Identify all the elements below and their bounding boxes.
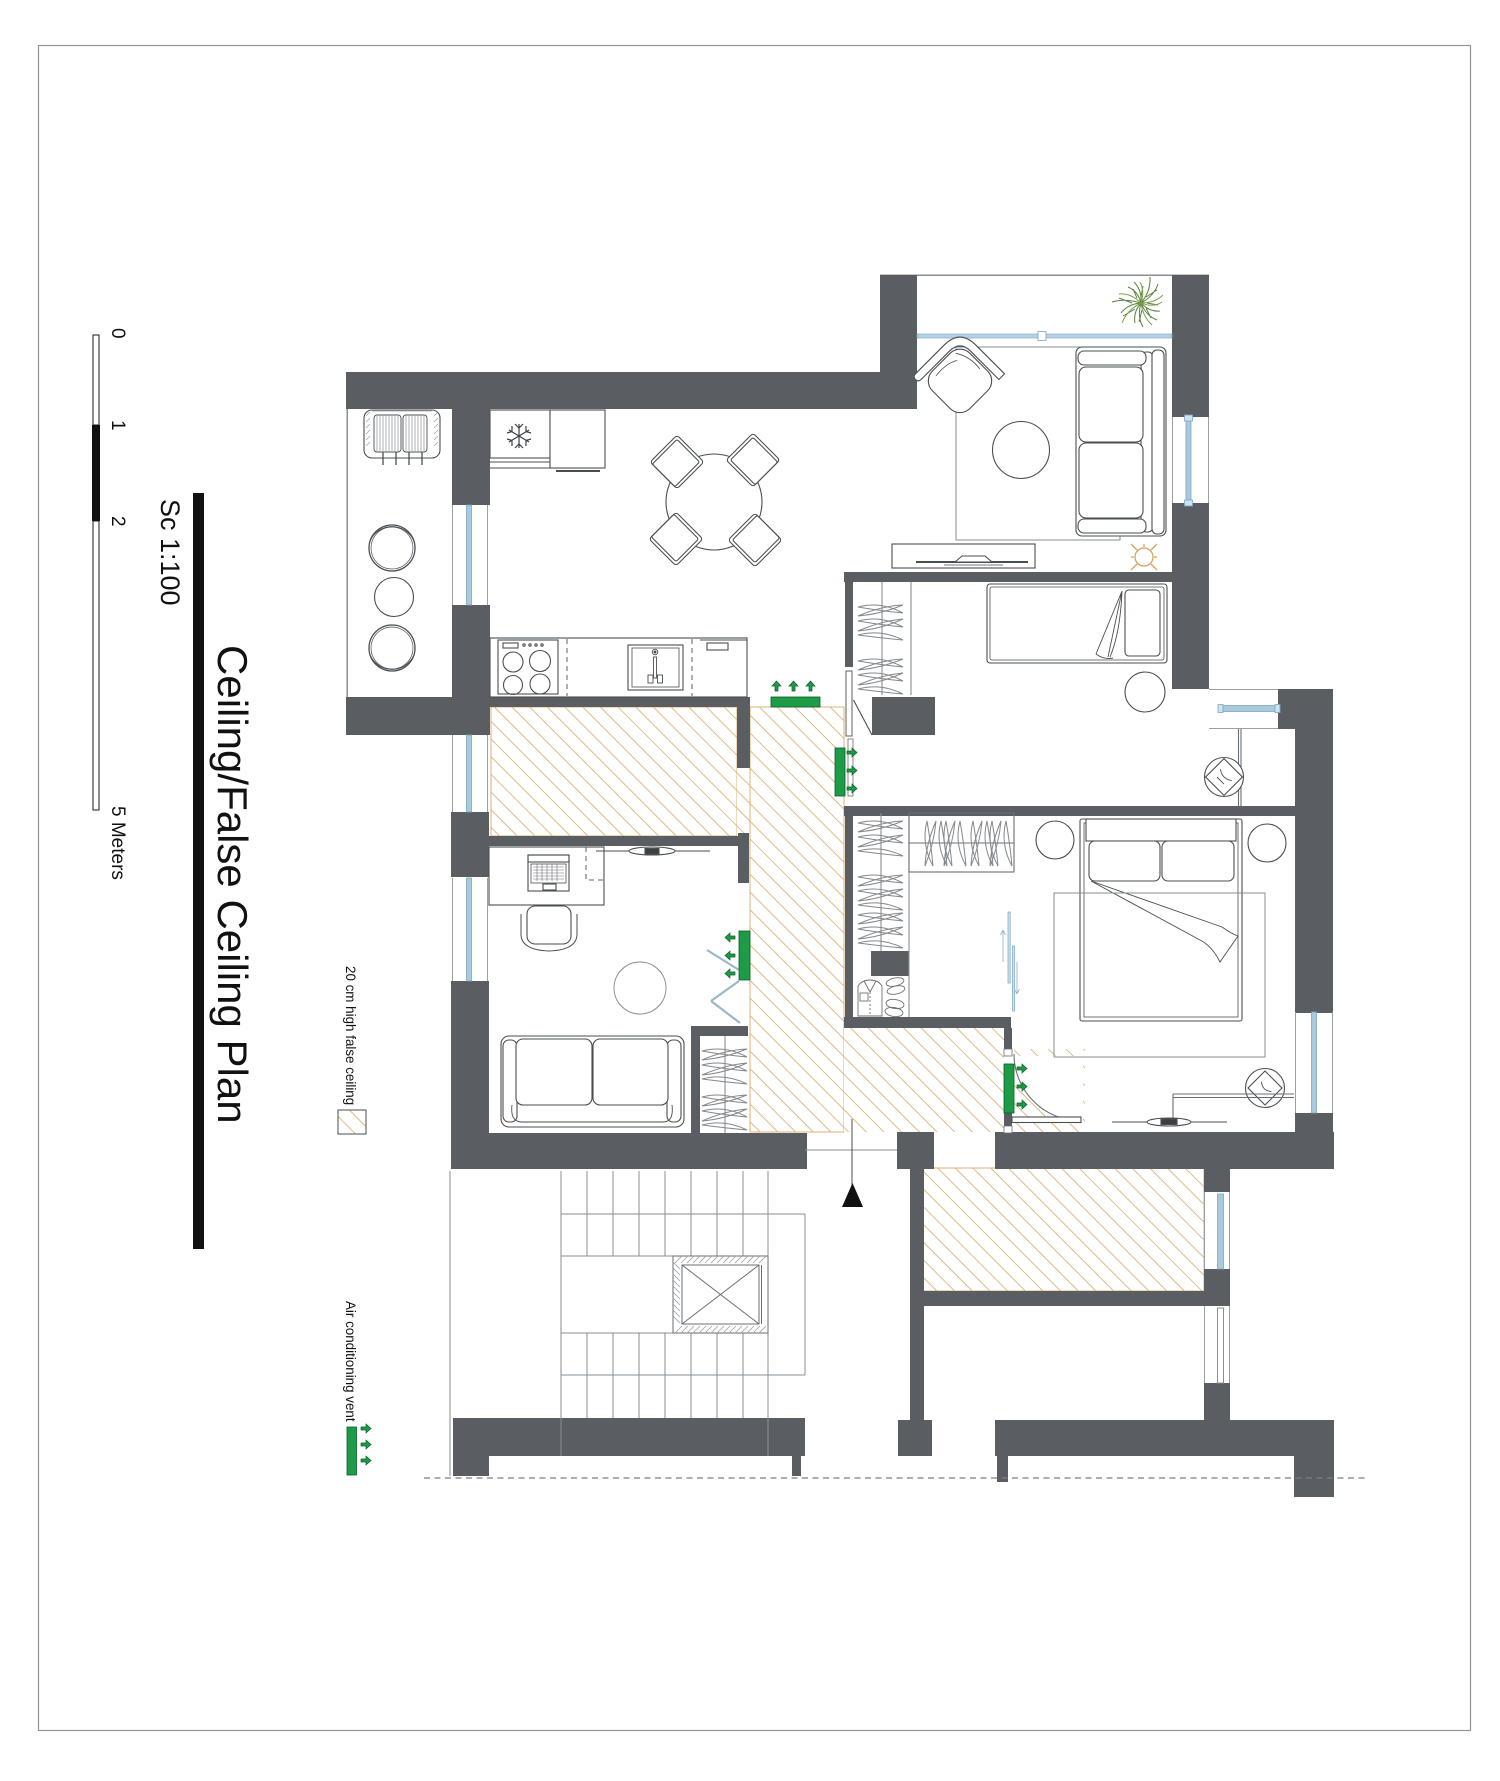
svg-text:0: 0 — [107, 328, 128, 339]
svg-text:1: 1 — [107, 420, 128, 431]
svg-text:Air conditioning vent: Air conditioning vent — [343, 1301, 358, 1422]
svg-text:5 Meters: 5 Meters — [107, 806, 128, 880]
svg-text:20 cm high false ceiling: 20 cm high false ceiling — [343, 966, 358, 1105]
svg-text:Ceiling/False Ceiling Plan: Ceiling/False Ceiling Plan — [209, 645, 256, 1124]
svg-text:2: 2 — [107, 516, 128, 527]
svg-text:Sc 1:100: Sc 1:100 — [155, 499, 185, 606]
